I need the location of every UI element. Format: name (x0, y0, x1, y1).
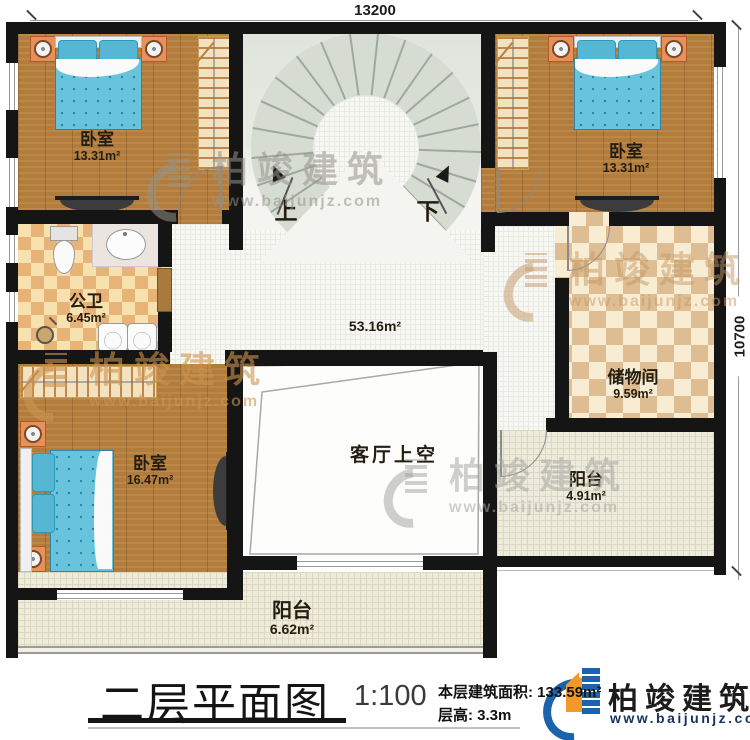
room-label-bedroom-tr: 卧室 13.31m² (576, 142, 676, 176)
room-name: 公卫 (36, 292, 136, 311)
wall-top (6, 22, 726, 34)
window (6, 158, 18, 207)
room-label-bathroom: 公卫 6.45m² (36, 292, 136, 326)
wall-segment (227, 364, 243, 600)
room-label-balcony-bottom: 阳台 6.62m² (242, 600, 342, 637)
door-leaf (157, 268, 172, 312)
floor-height-line: 层高: 3.3m (438, 704, 511, 725)
washing-machine (98, 323, 128, 352)
stair-up-label: 上 (266, 192, 306, 226)
toilet-tank (50, 226, 78, 241)
dimension-tick (731, 566, 742, 577)
balcony-parapet (497, 556, 714, 567)
wall-segment (423, 556, 483, 570)
wall-segment (18, 350, 170, 364)
washing-machine (127, 323, 157, 352)
wardrobe (198, 36, 230, 170)
room-area: 6.45m² (36, 311, 136, 326)
door-leaf (500, 430, 502, 476)
window (297, 558, 423, 570)
wall-left (6, 34, 18, 658)
nightstand (141, 36, 167, 62)
room-label-bedroom-bl: 卧室 16.47m² (100, 454, 200, 488)
dimension-line-top (30, 20, 698, 21)
stair-down-label: 下 (408, 192, 448, 226)
room-area: 9.59m² (583, 387, 683, 402)
wall-segment (158, 310, 172, 352)
lamp-icon (665, 40, 683, 58)
dimension-tick (692, 10, 703, 21)
wall-segment (546, 418, 714, 432)
wardrobe (497, 36, 529, 170)
bed-pillow (32, 453, 55, 492)
room-name: 储物间 (583, 368, 683, 387)
wall-segment (481, 212, 495, 252)
room-name: 阳台 (242, 600, 342, 622)
floor-area-value: 133.59m² (537, 684, 601, 701)
nightstand (20, 421, 46, 447)
wall-segment (158, 224, 172, 267)
wall-segment (609, 212, 714, 226)
wardrobe-rail (512, 37, 514, 169)
door-gap (481, 168, 495, 212)
dimension-tick (26, 10, 37, 21)
scale-value: 1:100 (354, 680, 427, 713)
door-leaf (497, 168, 499, 212)
room-area: 13.31m² (47, 149, 147, 164)
room-name: 卧室 (100, 454, 200, 473)
door-leaf (567, 226, 569, 270)
room-name: 阳台 (536, 470, 636, 489)
wardrobe (20, 366, 157, 398)
wall-segment (225, 350, 483, 366)
bed-pillow (32, 494, 55, 533)
balcony-parapet-line (497, 567, 714, 571)
wall-segment (555, 278, 569, 418)
wardrobe-rail (213, 37, 215, 169)
room-label-bedroom-tl: 卧室 13.31m² (47, 130, 147, 164)
room-label-balcony-right: 阳台 4.91m² (536, 470, 636, 504)
window (57, 590, 183, 600)
room-area: 16.47m² (100, 473, 200, 488)
floor-height-value: 3.3m (477, 707, 511, 724)
room-area: 13.31m² (576, 161, 676, 176)
floor-plan-page: 上 下 (0, 0, 750, 740)
lamp-icon (34, 40, 52, 58)
door-leaf (220, 166, 222, 210)
window (6, 63, 18, 110)
window (714, 67, 726, 178)
dimension-top-value: 13200 (338, 2, 412, 19)
room-label-hall: 53.16m² (330, 318, 420, 334)
wall-segment (243, 556, 297, 570)
wall-segment (18, 210, 178, 224)
lamp-icon (552, 40, 570, 58)
lamp-icon (145, 40, 163, 58)
wall-segment (483, 352, 497, 658)
floor-height-label: 层高: (438, 707, 477, 724)
room-label-void: 客厅上空 (324, 440, 464, 467)
room-name: 卧室 (47, 130, 147, 149)
floor-area-label: 本层建筑面积: (438, 684, 537, 701)
brand-url: www.baijunjz.com (610, 710, 750, 726)
nightstand (548, 36, 574, 62)
balcony-parapet (18, 646, 483, 654)
tv-bar (55, 196, 139, 200)
faucet-dot (123, 232, 127, 236)
tv-bar (575, 196, 659, 200)
wall-segment (495, 212, 569, 226)
title-underline (88, 718, 346, 723)
lamp-icon (24, 425, 42, 443)
door-gap (569, 212, 609, 226)
room-area: 6.62m² (242, 622, 342, 637)
room-name: 卧室 (576, 142, 676, 161)
floor-drain (36, 326, 54, 344)
wardrobe-rail (21, 381, 156, 383)
dimension-tick (731, 20, 742, 31)
window (6, 235, 18, 263)
wall-segment (222, 210, 243, 224)
room-area: 4.91m² (536, 489, 636, 504)
title-underline-light (88, 727, 520, 729)
nightstand (661, 36, 687, 62)
nightstand (30, 36, 56, 62)
floor-area-line: 本层建筑面积: 133.59m² (438, 681, 601, 702)
wall-segment (481, 34, 495, 168)
bed-headboard (20, 448, 32, 572)
dimension-right-value: 10700 (732, 297, 749, 377)
window (6, 292, 18, 322)
room-label-storage: 储物间 9.59m² (583, 368, 683, 402)
